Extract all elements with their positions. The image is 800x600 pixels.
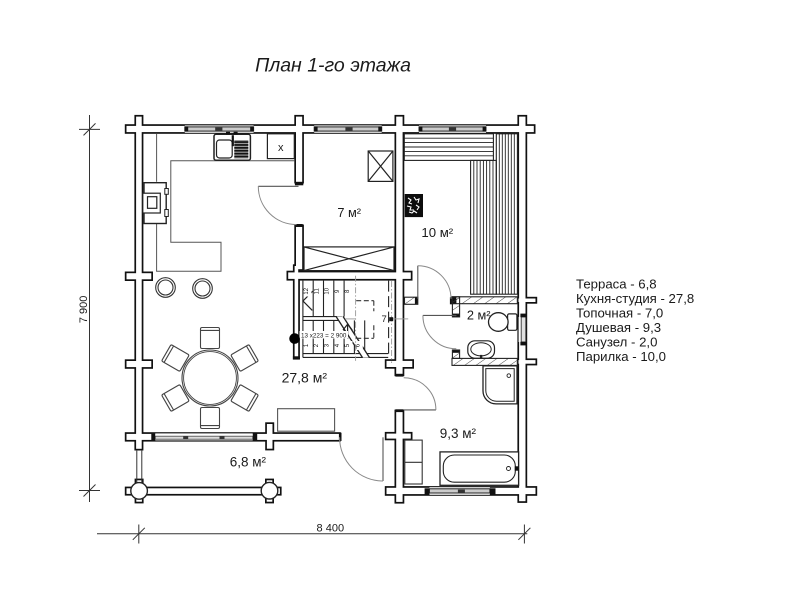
- svg-text:10: 10: [325, 287, 331, 294]
- svg-text:6,8 м²: 6,8 м²: [230, 455, 267, 470]
- svg-text:Санузел - 2,0: Санузел - 2,0: [576, 334, 657, 349]
- svg-text:8 400: 8 400: [317, 522, 345, 534]
- svg-text:Топочная - 7,0: Топочная - 7,0: [576, 305, 663, 320]
- svg-text:27,8 м²: 27,8 м²: [282, 370, 328, 386]
- svg-text:7 м²: 7 м²: [337, 205, 361, 220]
- svg-text:13 x223 = 2 900: 13 x223 = 2 900: [301, 332, 347, 339]
- svg-text:Парилка - 10,0: Парилка - 10,0: [576, 349, 666, 364]
- svg-text:Душевая - 9,3: Душевая - 9,3: [576, 320, 661, 335]
- svg-text:10 м²: 10 м²: [421, 225, 453, 240]
- svg-text:Кухня-студия - 27,8: Кухня-студия - 27,8: [576, 291, 694, 306]
- svg-text:11: 11: [314, 288, 320, 295]
- svg-text:x: x: [278, 142, 284, 154]
- svg-text:2 м²: 2 м²: [467, 307, 491, 322]
- svg-text:7: 7: [381, 314, 386, 325]
- svg-text:9,3 м²: 9,3 м²: [440, 426, 477, 441]
- svg-text:7 900: 7 900: [78, 296, 90, 324]
- svg-text:12: 12: [304, 287, 310, 294]
- svg-text:Терраса - 6,8: Терраса - 6,8: [576, 276, 657, 291]
- svg-text:План 1-го этажа: План 1-го этажа: [255, 55, 411, 77]
